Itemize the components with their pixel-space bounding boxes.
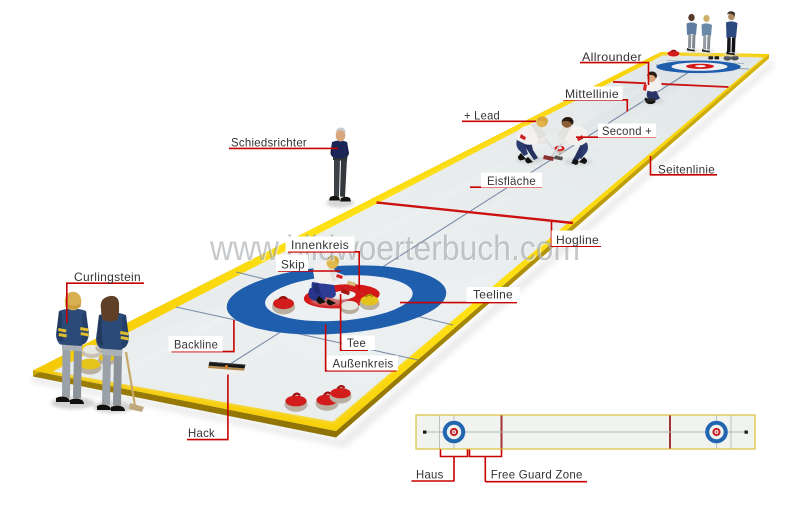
svg-text:Free Guard Zone: Free Guard Zone [491,467,583,481]
svg-text:Allrounder: Allrounder [582,50,642,64]
svg-text:Mittellinie: Mittellinie [565,87,619,101]
svg-text:Seitenlinie: Seitenlinie [658,163,715,177]
svg-text:Außenkreis: Außenkreis [333,357,394,371]
svg-text:Schiedsrichter: Schiedsrichter [231,136,307,150]
svg-text:Tee: Tee [347,336,366,350]
svg-text:www.bildwoerterbuch.com: www.bildwoerterbuch.com [209,229,580,268]
svg-text:Skip: Skip [281,258,305,272]
svg-text:Eisfläche: Eisfläche [487,174,536,188]
svg-text:Backline: Backline [174,338,218,352]
svg-text:Innenkreis: Innenkreis [291,238,349,252]
svg-text:Teeline: Teeline [473,288,513,302]
svg-text:Second +: Second + [602,124,652,138]
svg-text:+ Lead: + Lead [464,109,500,123]
svg-text:Curlingstein: Curlingstein [74,270,141,284]
svg-text:Haus: Haus [416,467,444,481]
svg-text:Hogline: Hogline [556,233,599,247]
svg-text:Hack: Hack [188,426,216,440]
